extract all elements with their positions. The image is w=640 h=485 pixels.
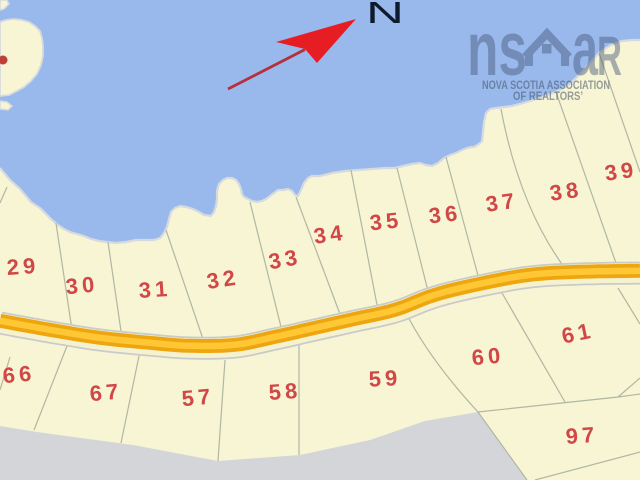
svg-text:OF REALTORS’: OF REALTORS’ bbox=[513, 91, 583, 103]
svg-text:R: R bbox=[597, 24, 622, 87]
svg-text:N: N bbox=[366, 0, 404, 30]
